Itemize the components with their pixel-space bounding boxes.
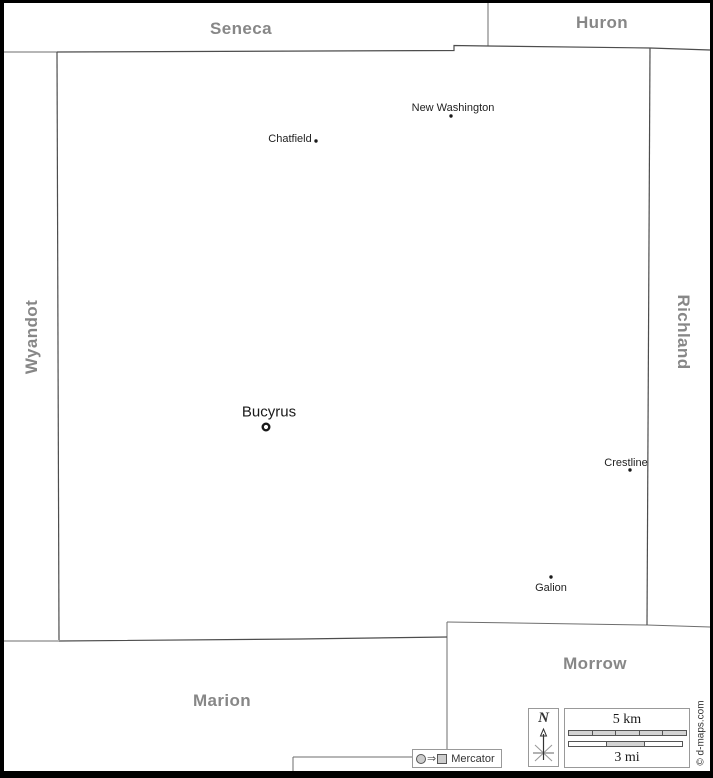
projection-name: Mercator [451, 753, 494, 765]
scale-bar-km-segment [569, 731, 593, 735]
city-label-galion: Galion [535, 582, 567, 594]
frame-border-left [0, 0, 4, 778]
scale-bar-mi [568, 741, 683, 747]
city-dot-chatfield [314, 139, 317, 142]
county-north-border-line [57, 46, 710, 53]
county-map: Seneca Huron Wyandot Richland Marion Mor… [0, 0, 713, 778]
county-label-morrow: Morrow [563, 654, 627, 674]
county-west-border-line [57, 52, 59, 640]
county-label-richland: Richland [673, 295, 693, 370]
projection-box: ⇒ Mercator [412, 749, 502, 768]
city-label-bucyrus: Bucyrus [242, 404, 296, 421]
frame-border-top [0, 0, 713, 3]
scale-bar-mi-segment [569, 742, 607, 746]
scale-bar-mi-segment [607, 742, 645, 746]
copyright-credit: © d-maps.com [696, 700, 707, 765]
scale-bar-mi-segment [645, 742, 682, 746]
county-label-wyandot: Wyandot [22, 300, 42, 374]
county-label-marion: Marion [193, 691, 251, 711]
city-label-chatfield: Chatfield [268, 133, 311, 145]
scale-km-label: 5 km [565, 712, 689, 728]
city-ring-bucyrus [263, 424, 270, 431]
county-east-border-line [647, 48, 650, 625]
projected-square-icon [437, 754, 447, 764]
compass-box: N [528, 708, 559, 767]
city-label-crestline: Crestline [604, 457, 647, 469]
scale-bar-km-segment [593, 731, 617, 735]
county-label-seneca: Seneca [210, 19, 272, 39]
globe-circle-icon [416, 754, 426, 764]
frame-border-bottom [0, 771, 713, 778]
county-label-huron: Huron [576, 13, 628, 33]
scale-bar-km [568, 730, 687, 736]
scale-bar-km-segment [616, 731, 640, 735]
city-label-new-washington: New Washington [412, 102, 495, 114]
scale-box: 5 km 3 mi [564, 708, 690, 768]
scale-bar-km-segment [663, 731, 686, 735]
city-dot-new-washington [449, 114, 452, 117]
transform-arrow-icon: ⇒ [427, 754, 436, 764]
morrow-north-border-line [447, 622, 710, 627]
compass-rose-icon [529, 727, 558, 765]
city-dot-galion [549, 575, 552, 578]
marion-morrow-border-jog-line [293, 757, 413, 771]
scale-mi-label: 3 mi [565, 750, 689, 766]
north-label: N [529, 709, 558, 727]
scale-bar-km-segment [640, 731, 664, 735]
county-south-border-line [59, 637, 447, 641]
